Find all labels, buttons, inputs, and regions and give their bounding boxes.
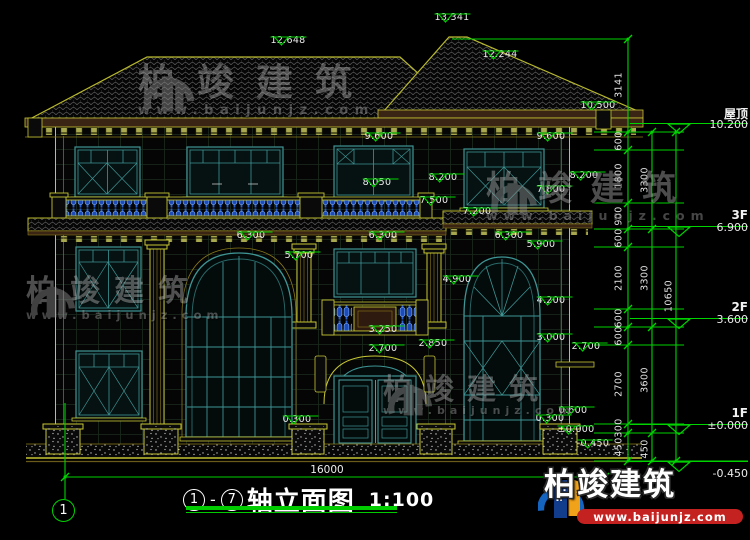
elevation-marker: 8.200: [570, 171, 599, 181]
chain-dim-value: 450: [640, 439, 651, 458]
level-arrow-icon: [537, 185, 573, 195]
elevation-marker: 12.244: [482, 50, 517, 60]
wall-ornament: [424, 356, 435, 392]
elevation-marker: 8.200: [429, 173, 458, 183]
elevation-marker: 2.700: [369, 344, 398, 354]
floor-elevation: ±0.000: [648, 419, 748, 432]
elevation-marker: 13.341: [434, 13, 469, 23]
chain-dim-value: 600: [614, 131, 625, 150]
level-arrow-icon: [537, 132, 573, 142]
level-arrow-icon: [537, 333, 573, 343]
title-underline-thick: [186, 506, 397, 510]
level-arrow-icon: [369, 231, 405, 241]
floor-name: 1F: [648, 406, 748, 420]
brand-logo-site: www.baijunjz.com: [577, 509, 743, 524]
eave-bracket: [596, 110, 611, 129]
level-arrow-icon: [429, 173, 465, 183]
elevation-marker: 5.900: [527, 240, 556, 250]
overall-dimension-value: 16000: [310, 464, 343, 476]
chain-dim-value: 2100: [614, 265, 625, 291]
elevation-marker: 9.600: [365, 132, 394, 142]
level-arrow-icon: [283, 415, 319, 425]
axis-bubble-1: 1: [52, 499, 75, 522]
level-arrow-icon: [495, 231, 531, 241]
elevation-marker: 4.900: [443, 275, 472, 285]
floor-elevation: 6.900: [648, 221, 748, 234]
wall-ornament: [315, 356, 326, 392]
level-arrow-icon: [365, 132, 401, 142]
level-arrow-icon: [237, 231, 273, 241]
elevation-marker: 12.648: [270, 36, 305, 46]
elevation-marker: 7.500: [420, 196, 449, 206]
arched-window-right: [458, 257, 546, 445]
elevation-marker: 3.000: [537, 333, 566, 343]
brand-logo: 柏竣建筑 www.baijunjz.com: [538, 470, 676, 501]
floor-elevation: 3.600: [648, 313, 748, 326]
level-arrow-icon: [527, 240, 563, 250]
level-arrow-icon: [420, 196, 456, 206]
elevation-marker: 6.300: [495, 231, 524, 241]
elevation-marker: 9.600: [537, 132, 566, 142]
level-arrow-icon: [580, 101, 616, 111]
balustrade-3f: [50, 193, 434, 221]
elevation-marker: 5.700: [285, 251, 314, 261]
chain-dim-value: 600: [614, 228, 625, 247]
chain-dim-value: 600: [614, 308, 625, 327]
elevation-marker: 3.250: [369, 325, 398, 335]
elevation-marker: 4.200: [537, 296, 566, 306]
elevation-marker: -0.450: [577, 439, 609, 449]
level-arrow-icon: [558, 425, 594, 435]
level-arrow-icon: [363, 178, 399, 188]
chain-dim-value: 3600: [640, 367, 651, 393]
level-arrow-icon: [572, 342, 608, 352]
eave-bracket: [28, 118, 42, 137]
chain-dim-value: 3300: [640, 265, 651, 291]
level-arrow-icon: [577, 439, 613, 449]
level-arrow-icon: [537, 296, 573, 306]
chain-dim-value: 2700: [614, 371, 625, 397]
elevation-marker: 8.050: [363, 178, 392, 188]
level-arrow-icon: [536, 414, 572, 424]
elevation-drawing: [0, 0, 750, 540]
floor-elevation: 10.200: [648, 118, 748, 131]
elevation-marker: 6.300: [237, 231, 266, 241]
chain-dim-value: 900: [614, 206, 625, 225]
floor-name: 2F: [648, 300, 748, 314]
elevation-marker: 6.300: [369, 231, 398, 241]
level-arrow-icon: [369, 344, 405, 354]
level-arrow-icon: [270, 36, 306, 46]
brand-logo-name: 柏竣建筑: [544, 470, 676, 501]
title-underline-thin: [186, 512, 397, 513]
level-arrow-icon: [482, 50, 518, 60]
level-arrow-icon: [443, 275, 479, 285]
chain-dim-value: 300: [614, 418, 625, 437]
side-canopy: [556, 362, 594, 367]
brand-logo-text-wrap: 柏竣建筑 www.baijunjz.com: [538, 470, 676, 501]
level-arrow-icon: [434, 13, 470, 23]
chain-dim-value: 600: [614, 326, 625, 345]
elevation-marker: 2.700: [572, 342, 601, 352]
floor-name: 3F: [648, 208, 748, 222]
elevation-marker: 0.300: [536, 414, 565, 424]
elevation-marker: 7.200: [463, 207, 492, 217]
level-arrow-icon: [463, 207, 499, 217]
level-arrow-icon: [285, 251, 321, 261]
level-arrow-icon: [369, 325, 405, 335]
level-arrow-icon: [419, 339, 455, 349]
elevation-marker: 2.850: [419, 339, 448, 349]
cad-elevation-sheet: 13.34112.64812.24410.5009.6009.6008.0508…: [0, 0, 750, 540]
elevation-marker: 10.500: [580, 101, 615, 111]
chain-dim-value: 3300: [640, 167, 651, 193]
elevation-marker: ±0.000: [558, 425, 595, 435]
chain-dim-value: 450: [614, 437, 625, 456]
elevation-marker: 7.800: [537, 185, 566, 195]
chain-dim-value: 1800: [614, 163, 625, 189]
arched-window-left: [180, 248, 298, 441]
elevation-marker: 0.300: [283, 415, 312, 425]
first-floor-window: [72, 351, 146, 421]
chain-dim-value: 3141: [614, 72, 625, 98]
level-arrow-icon: [570, 171, 606, 181]
